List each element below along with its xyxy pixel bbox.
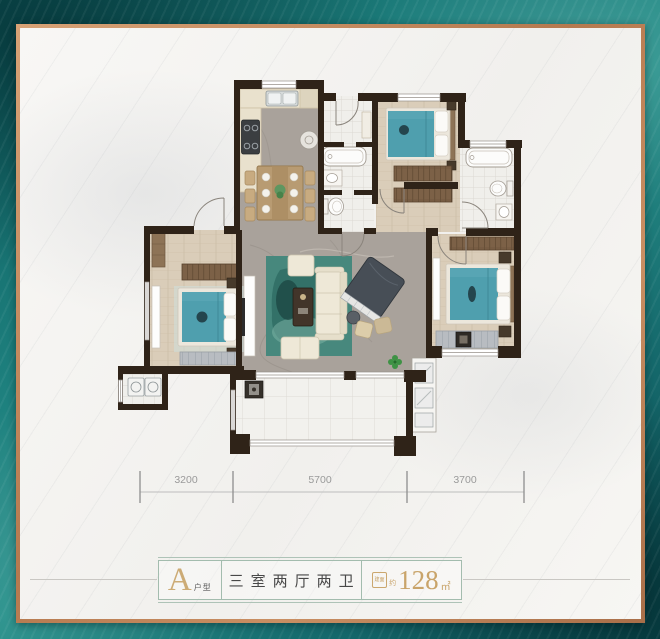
area-section: 建面 约 128 ㎡ [362, 561, 461, 599]
shoe-cabinet [362, 112, 371, 138]
unit-letter: A [168, 564, 192, 597]
area-approx: 约 [389, 578, 396, 588]
divider-line-left [30, 579, 157, 580]
layout-text: 三室两厅两卫 [222, 570, 361, 591]
area-value: 128 [398, 567, 439, 594]
coffee-table [293, 288, 313, 326]
tv-panel [152, 286, 160, 348]
layout-section: 三室两厅两卫 [222, 561, 362, 599]
bench [180, 352, 238, 365]
tv-panel [433, 258, 440, 320]
washer [145, 378, 161, 396]
wardrobe [182, 264, 240, 280]
sofa [316, 272, 342, 334]
tv-cabinet [244, 276, 255, 356]
poster-background: 3200 5700 3700 A 户型 三室两厅两卫 建面 约 128 ㎡ [0, 0, 660, 639]
pouf [374, 316, 393, 334]
dim-label-right: 3700 [453, 474, 477, 486]
armchair [288, 255, 314, 276]
stove [242, 120, 260, 154]
dimension-line: 3200 5700 3700 [140, 471, 524, 503]
toilet [490, 181, 506, 196]
unit-suffix: 户型 [194, 582, 212, 593]
unit-type-section: A 户型 [159, 561, 222, 599]
bedroom-left-door [194, 198, 224, 226]
cabinet [152, 233, 165, 267]
wardrobe [450, 237, 514, 250]
dim-label-left: 3200 [174, 474, 198, 486]
tv [242, 298, 245, 336]
floor-plan: 3200 5700 3700 [0, 0, 660, 639]
entry [362, 112, 371, 138]
unit-label-box: A 户型 三室两厅两卫 建面 约 128 ㎡ [158, 560, 462, 600]
area-unit: ㎡ [441, 578, 451, 593]
area-badge-icon: 建面 [372, 572, 387, 588]
water-heater [300, 131, 318, 149]
washer [128, 378, 144, 396]
divider-line-right [463, 579, 630, 580]
hall-closet [394, 188, 452, 202]
wardrobe [394, 166, 452, 181]
dim-label-center: 5700 [308, 474, 332, 486]
